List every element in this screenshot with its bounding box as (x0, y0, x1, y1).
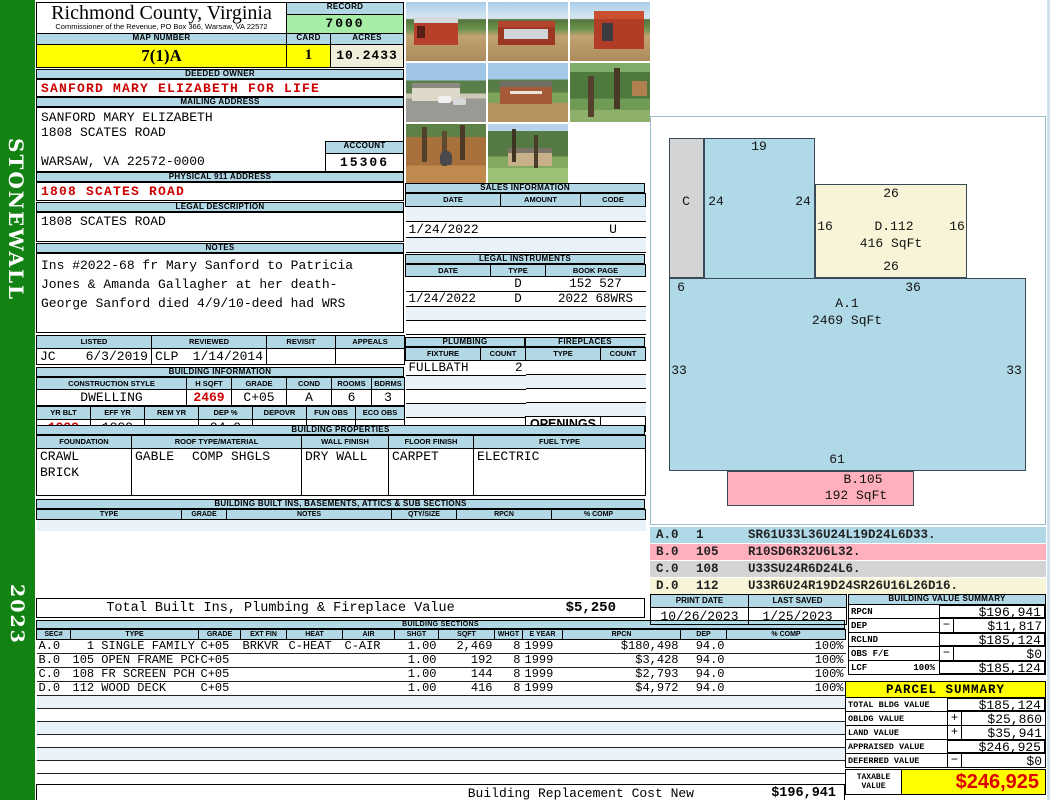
heated-sqft: 2469 (187, 390, 232, 406)
plumbing-panel: PLUMBING FIXTURE COUNT FULLBATH2 (405, 337, 525, 432)
dim-label: 26 (883, 260, 899, 274)
plumbing-row (406, 389, 526, 403)
mailing-name: SANFORD MARY ELIZABETH (41, 110, 399, 125)
tax-year: 2023 (6, 584, 28, 645)
parcel-row-land: LAND VALUE + $35,941 (845, 725, 1046, 740)
last-saved-label: LAST SAVED (749, 595, 847, 608)
card-cell: CARD 1 (287, 34, 331, 68)
card-value: 1 (287, 45, 330, 67)
district-spine: STONEWALL 2023 (0, 0, 35, 800)
property-photos (406, 2, 650, 183)
legend-row-b: B.0 105 R10SD6R32U6L32. (650, 544, 1046, 560)
mailing-address-box: SANFORD MARY ELIZABETH 1808 SCATES ROAD … (36, 107, 404, 172)
map-number-label: MAP NUMBER (37, 34, 286, 45)
fireplace-row (526, 388, 646, 402)
built-ins-label: BUILDING BUILT INS, BASEMENTS, ATTICS & … (36, 499, 645, 509)
total-built-ins-label: Total Built Ins, Plumbing & Fireplace Va… (37, 601, 524, 616)
print-date-label: PRINT DATE (651, 595, 749, 608)
construction-style: DWELLING (37, 390, 187, 406)
bvs-row-lcf: LCF100% $185,124 (848, 660, 1046, 675)
middle-column: SALES INFORMATION DATE AMOUNT CODE 1/24/… (405, 183, 645, 432)
dim-label: 16 (949, 220, 965, 234)
rooms: 6 (332, 390, 372, 406)
property-photo-house-behind-pines (488, 124, 568, 183)
legal-instrument-row (406, 307, 646, 321)
building-section-row: A.0 1 SINGLE FAMILY C+05 BRKVR C-HEAT C-… (37, 640, 846, 654)
acres-value: 10.2433 (331, 45, 403, 67)
record-box: RECORD 7000 (287, 2, 404, 34)
reviewed-value: CLP1/14/2014 (152, 348, 267, 364)
property-photo-house-with-driveway (406, 63, 486, 122)
reviewed-label: REVIEWED (152, 336, 267, 349)
deeded-owner-label: DEEDED OWNER (36, 69, 404, 79)
parcel-row-obldg: OBLDG VALUE + $25,860 (845, 711, 1046, 726)
map-number-value: 7(1)A (37, 45, 286, 67)
sales-information-table: DATE AMOUNT CODE 1/24/2022 U (405, 193, 646, 253)
account-box: ACCOUNT 15306 (325, 141, 404, 172)
building-sketch: 19 C 24 24 26 16 D.112 416 SqFt 16 26 6 … (650, 116, 1046, 525)
plumbing-label: PLUMBING (405, 337, 525, 347)
dim-label: 16 (817, 220, 833, 234)
sales-row: 1/24/2022 U (406, 221, 646, 237)
parcel-row-deferred: DEFERRED VALUE − $0 (845, 753, 1046, 768)
taxable-value: $246,925 (902, 769, 1046, 795)
card-label: CARD (287, 34, 330, 45)
legal-instruments-label: LEGAL INSTRUMENTS (405, 254, 645, 264)
building-section-empty-row (37, 709, 846, 722)
legal-instrument-row: D 152 527 (406, 277, 646, 292)
plumbing-table: FIXTURE COUNT FULLBATH2 (405, 347, 526, 418)
building-section-row: C.0 108 FR SCREEN PCH C+05 1.00 144 8 19… (37, 668, 846, 682)
legend-row-a: A.0 1 SR61U33L36U24L19D24L6D33. (650, 527, 1046, 543)
print-info: PRINT DATE LAST SAVED 10/26/2023 1/25/20… (650, 594, 846, 625)
building-section-row: B.0 105 OPEN FRAME PCH C+05 1.00 192 8 1… (37, 654, 846, 668)
revisit-value (267, 348, 336, 364)
county-name: Richmond County, Virginia (37, 3, 286, 23)
mailing-address-label: MAILING ADDRESS (36, 97, 404, 107)
account-label: ACCOUNT (326, 142, 403, 154)
notes-box: Ins #2022-68 fr Mary Sanford to Patricia… (36, 253, 404, 333)
fireplaces-label: FIREPLACES (525, 337, 645, 347)
plus-icon: + (948, 725, 962, 740)
building-section-empty-row (37, 748, 846, 761)
acres-cell: ACRES 10.2433 (331, 34, 404, 68)
property-photo-dog-in-woods (406, 124, 486, 183)
map-card-acres-row: MAP NUMBER 7(1)A CARD 1 ACRES 10.2433 (36, 34, 404, 68)
building-properties-label: BUILDING PROPERTIES (36, 425, 645, 435)
record-label: RECORD (287, 3, 403, 15)
county-title-box: Richmond County, Virginia Commissioner o… (36, 2, 287, 34)
building-information-label: BUILDING INFORMATION (36, 367, 404, 377)
record-value: 7000 (287, 15, 403, 33)
notes-line: George Sanford died 4/9/10-deed had WRS (41, 294, 399, 313)
dim-label: 26 (883, 187, 899, 201)
listed-label: LISTED (37, 336, 152, 349)
minus-icon: − (940, 646, 954, 661)
fuel-type-value: ELECTRIC (474, 448, 646, 495)
section-d-sqft: 416 SqFt (860, 237, 922, 251)
notes-label: NOTES (36, 243, 404, 253)
account-value: 15306 (326, 154, 403, 171)
dim-label: 33 (1006, 364, 1022, 378)
fireplace-row (526, 374, 646, 388)
condition: A (287, 390, 332, 406)
wall-finish-value: DRY WALL (302, 448, 389, 495)
physical-address-label: PHYSICAL 911 ADDRESS (36, 172, 404, 182)
property-photo-brick-house (488, 63, 568, 122)
built-ins-empty-row (37, 531, 646, 543)
listed-value: JC6/3/2019 (37, 348, 152, 364)
total-built-ins-value: $5,250 (524, 600, 644, 616)
plumbing-row (406, 375, 526, 389)
replacement-cost-label: Building Replacement Cost New (468, 786, 734, 800)
property-photo-red-barn-side (570, 2, 650, 61)
last-saved-value: 1/25/2023 (749, 608, 847, 625)
section-d-label: D.112 (874, 220, 913, 234)
notes-line: Ins #2022-68 fr Mary Sanford to Patricia (41, 256, 399, 275)
section-c-label: C (682, 195, 690, 209)
plumbing-row (406, 403, 526, 417)
taxable-value-row: TAXABLE VALUE $246,925 (845, 769, 1046, 795)
notes-line: Jones & Amanda Gallagher at her death- (41, 275, 399, 294)
section-a-label: A.1 (835, 297, 858, 311)
acres-label: ACRES (331, 34, 403, 45)
parcel-summary-title: PARCEL SUMMARY (845, 681, 1046, 698)
legal-description-value: 1808 SCATES ROAD (36, 212, 404, 242)
built-ins-empty-row (37, 519, 646, 531)
parcel-row-appraised: APPRAISED VALUE $246,925 (845, 739, 1046, 754)
bvs-row-rclnd: RCLND $185,124 (848, 632, 1046, 647)
floor-finish-value: CARPET (389, 448, 474, 495)
legal-instruments-table: DATE TYPE BOOK PAGE D 152 527 1/24/2022 … (405, 264, 646, 336)
parcel-summary: PARCEL SUMMARY TOTAL BLDG VALUE $185,124… (845, 681, 1046, 795)
minus-icon: − (948, 753, 962, 768)
taxable-value-label: TAXABLE VALUE (845, 769, 902, 795)
dim-label: 33 (671, 364, 687, 378)
building-section-empty-row (37, 696, 846, 709)
fireplace-row (526, 402, 646, 416)
district-name: STONEWALL (4, 138, 28, 301)
bvs-row-rpcn: RPCN $196,941 (848, 604, 1046, 619)
building-properties-section: BUILDING PROPERTIES FOUNDATION ROOF TYPE… (36, 425, 645, 543)
dim-label: 6 (677, 281, 685, 295)
map-number-cell: MAP NUMBER 7(1)A (36, 34, 287, 68)
bvs-row-dep: DEP − $11,817 (848, 618, 1046, 633)
building-section-empty-row (37, 722, 846, 735)
bvs-row-obs: OBS F/E − $0 (848, 646, 1046, 661)
property-photo-yard-with-trees (570, 63, 650, 122)
section-b-label: B.105 (843, 473, 882, 487)
dim-label: 24 (708, 195, 724, 209)
sales-information-label: SALES INFORMATION (405, 183, 645, 193)
legal-description-label: LEGAL DESCRIPTION (36, 202, 404, 212)
legal-instrument-row (406, 321, 646, 335)
legend-row-c: C.0 108 U33SU24R6D24L6. (650, 561, 1046, 577)
dim-label: 36 (905, 281, 921, 295)
minus-icon: − (940, 618, 954, 633)
building-properties-table: FOUNDATION ROOF TYPE/MATERIAL WALL FINIS… (36, 435, 646, 496)
revisit-label: REVISIT (267, 336, 336, 349)
sketch-legend: A.0 1 SR61U33L36U24L19D24L6D33. B.0 105 … (650, 527, 1046, 595)
legal-instrument-row: 1/24/2022 D 2022 68WRS (406, 292, 646, 307)
legend-row-d: D.0 112 U33R6U24R19D24SR26U16L26D16. (650, 578, 1046, 594)
fireplaces-panel: FIREPLACES TYPE COUNT OPENINGS (525, 337, 645, 432)
bedrooms: 3 (372, 390, 405, 406)
replacement-cost-value: $196,941 (734, 786, 844, 800)
sales-row (406, 237, 646, 252)
total-built-ins-row: Total Built Ins, Plumbing & Fireplace Va… (36, 598, 645, 618)
review-table: LISTED REVIEWED REVISIT APPEALS JC6/3/20… (36, 335, 405, 365)
replacement-cost-row: Building Replacement Cost New $196,941 (36, 784, 845, 800)
foundation-value: CRAWL BRICK (37, 448, 132, 495)
dim-label: 24 (795, 195, 811, 209)
section-b-sqft: 192 SqFt (825, 489, 887, 503)
building-section-empty-row (37, 735, 846, 748)
property-photo-red-carport (488, 2, 568, 61)
dim-label: 61 (829, 453, 845, 467)
building-information-row1: CONSTRUCTION STYLE H SQFT GRADE COND ROO… (36, 377, 405, 407)
commissioner-line: Commissioner of the Revenue, PO Box 366,… (37, 23, 286, 31)
property-photo-red-barn-front (406, 2, 486, 61)
built-ins-table: TYPE GRADE NOTES QTY/SIZE RPCN % COMP (36, 509, 646, 544)
building-section-row: D.0 112 WOOD DECK C+05 1.00 416 8 1999 $… (37, 682, 846, 696)
plumbing-row: FULLBATH2 (406, 360, 526, 375)
grade: C+05 (232, 390, 287, 406)
building-sections-block: Total Built Ins, Plumbing & Fireplace Va… (36, 598, 845, 800)
left-column: Richmond County, Virginia Commissioner o… (36, 2, 404, 436)
plus-icon: + (948, 711, 962, 726)
county-header: Richmond County, Virginia Commissioner o… (36, 2, 404, 34)
fireplace-row (526, 360, 646, 374)
building-sections-table: SEC# TYPE GRADE EXT FIN HEAT AIR SHGT SQ… (36, 629, 846, 774)
sales-row (406, 206, 646, 221)
print-date-value: 10/26/2023 (651, 608, 749, 625)
fireplaces-table: TYPE COUNT OPENINGS (525, 347, 646, 432)
appeals-label: APPEALS (336, 336, 405, 349)
parcel-row-total-bldg: TOTAL BLDG VALUE $185,124 (845, 697, 1046, 712)
deeded-owner-value: SANFORD MARY ELIZABETH FOR LIFE (36, 79, 404, 97)
building-value-summary: BUILDING VALUE SUMMARY RPCN $196,941 DEP… (848, 594, 1046, 675)
dim-label: 19 (751, 140, 767, 154)
mailing-street: 1808 SCATES ROAD (41, 125, 399, 140)
appeals-value (336, 348, 405, 364)
section-a-sqft: 2469 SqFt (812, 314, 882, 328)
building-section-empty-row (37, 761, 846, 774)
physical-address-value: 1808 SCATES ROAD (36, 182, 404, 201)
roof-value: GABLECOMP SHGLS (132, 448, 302, 495)
